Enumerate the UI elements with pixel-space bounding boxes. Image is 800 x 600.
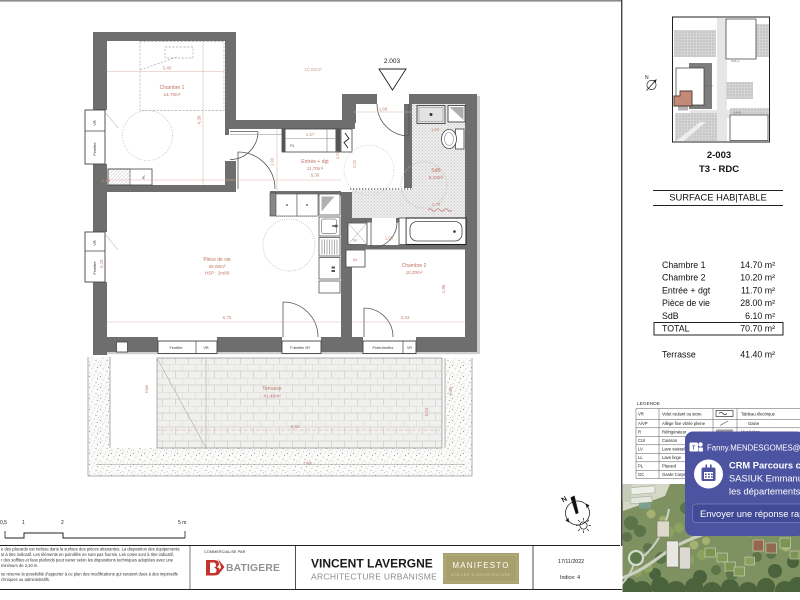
svg-text:28.00 m²: 28.00 m² xyxy=(740,298,775,308)
svg-text:Indice: 4: Indice: 4 xyxy=(560,575,580,581)
svg-text:SASIUK Emmanue: SASIUK Emmanue xyxy=(729,474,800,484)
svg-text:Fenêtre: Fenêtre xyxy=(169,346,182,350)
svg-text:41.40 m²: 41.40 m² xyxy=(740,350,775,360)
svg-text:COL.1: COL.1 xyxy=(731,59,740,63)
svg-text:st à titre indicatif. Les élém: st à titre indicatif. Les éléments en po… xyxy=(1,552,174,557)
svg-text:A/VP: A/VP xyxy=(638,421,648,426)
svg-text:r des soffites et faux plafond: r des soffites et faux plafonds peut var… xyxy=(1,558,174,563)
svg-text:Chambre 1: Chambre 1 xyxy=(662,260,706,270)
svg-text:14,70m²: 14,70m² xyxy=(164,92,181,97)
svg-text:Garde Corps: Garde Corps xyxy=(662,472,686,477)
svg-text:Haie: Haie xyxy=(448,386,453,395)
svg-text:11.70 m²: 11.70 m² xyxy=(741,285,775,295)
svg-text:60: 60 xyxy=(353,238,358,243)
svg-text:2: 2 xyxy=(61,520,64,526)
svg-text:Lave linge: Lave linge xyxy=(662,455,682,460)
svg-text:VR: VR xyxy=(92,240,97,246)
svg-text:17/11/2022: 17/11/2022 xyxy=(558,559,584,565)
svg-text:CRM Parcours co: CRM Parcours co xyxy=(729,461,800,471)
svg-text:Gaine: Gaine xyxy=(748,421,760,426)
svg-text:1,90: 1,90 xyxy=(270,157,275,166)
svg-text:70.70 m²: 70.70 m² xyxy=(740,324,775,334)
svg-text:6,10m²: 6,10m² xyxy=(429,175,444,180)
svg-text:e des placards est incluse dan: e des placards est incluse dans la surfa… xyxy=(1,547,180,552)
svg-text:3,40: 3,40 xyxy=(163,66,172,71)
svg-text:VR: VR xyxy=(92,120,97,126)
svg-text:2,02: 2,02 xyxy=(352,159,357,168)
svg-text:4,38: 4,38 xyxy=(197,115,202,124)
svg-text:TOTAL: TOTAL xyxy=(662,324,690,334)
svg-text:Porte-fenêtre: Porte-fenêtre xyxy=(373,346,394,350)
svg-text:1,22: 1,22 xyxy=(102,178,111,183)
svg-text:PL: PL xyxy=(142,175,146,179)
svg-text:R: R xyxy=(638,429,641,434)
svg-text:VR: VR xyxy=(407,346,412,350)
svg-text:PL: PL xyxy=(638,463,644,468)
svg-text:5,39: 5,39 xyxy=(311,173,320,178)
svg-text:Pièce de vie: Pièce de vie xyxy=(662,298,710,308)
svg-text:2.003: 2.003 xyxy=(384,58,401,65)
svg-text:Placard: Placard xyxy=(662,463,677,468)
svg-text:Chambre 2: Chambre 2 xyxy=(662,273,706,283)
svg-text:Terrasse: Terrasse xyxy=(262,386,281,392)
svg-text:se réserve la possibilité d'ap: se réserve la possibilité d'apporter à c… xyxy=(1,572,178,577)
svg-text:41,40m²: 41,40m² xyxy=(263,394,281,400)
svg-text:Réfrigérateur: Réfrigérateur xyxy=(662,429,687,434)
svg-text:10,20m²: 10,20m² xyxy=(406,270,423,275)
svg-text:LEGENDE: LEGENDE xyxy=(637,401,660,407)
svg-text:les départements: les départements xyxy=(729,487,800,497)
svg-text:Chambre 1: Chambre 1 xyxy=(160,85,185,91)
svg-text:chniques ou administratifs.: chniques ou administratifs. xyxy=(1,577,50,582)
svg-text:MANIFESTO: MANIFESTO xyxy=(452,561,509,570)
svg-text:1,56: 1,56 xyxy=(431,127,440,132)
svg-text:4,20: 4,20 xyxy=(99,259,104,268)
svg-text:ATELIER D'ARCHITECTURE: ATELIER D'ARCHITECTURE xyxy=(451,573,510,577)
svg-text:1,57: 1,57 xyxy=(306,132,315,137)
svg-text:Chambre 2: Chambre 2 xyxy=(402,263,427,269)
svg-text:1,68: 1,68 xyxy=(379,107,388,112)
svg-text:CUI: CUI xyxy=(638,438,645,443)
svg-text:Lave vaisselle: Lave vaisselle xyxy=(662,446,689,451)
svg-text:Allège fixe vitrée pleine: Allège fixe vitrée pleine xyxy=(662,421,706,426)
svg-text:VINCENT LAVERGNE: VINCENT LAVERGNE xyxy=(311,557,433,571)
svg-text:28,00m²: 28,00m² xyxy=(209,264,226,269)
svg-text:5 m: 5 m xyxy=(178,520,186,526)
svg-text:Pièce de vie: Pièce de vie xyxy=(203,257,230,263)
svg-text:Terrasse: Terrasse xyxy=(662,350,696,360)
svg-text:10,92m²: 10,92m² xyxy=(304,67,322,73)
svg-text:P-fenêtre VR: P-fenêtre VR xyxy=(290,346,310,350)
svg-text:PL: PL xyxy=(290,143,296,148)
svg-text:BATIGERE: BATIGERE xyxy=(226,563,280,574)
svg-text:VR: VR xyxy=(203,346,209,350)
svg-text:Haie: Haie xyxy=(144,384,149,393)
svg-text:Cuisson: Cuisson xyxy=(662,438,678,443)
svg-text:Tableau électrique: Tableau électrique xyxy=(741,412,776,417)
svg-text:6,75: 6,75 xyxy=(223,315,232,320)
svg-text:0,5: 0,5 xyxy=(0,520,7,526)
svg-text:LL: LL xyxy=(638,455,643,460)
svg-text:Fanny.MENDESGOMES@b: Fanny.MENDESGOMES@b xyxy=(707,444,800,453)
svg-text:14.70 m²: 14.70 m² xyxy=(740,260,775,270)
svg-text:minimum de 2,10 m.: minimum de 2,10 m. xyxy=(1,563,39,568)
svg-text:ARCHITECTURE URBANISME: ARCHITECTURE URBANISME xyxy=(311,572,437,582)
svg-text:GC: GC xyxy=(638,472,644,477)
svg-text:Volet roulant ou store: Volet roulant ou store xyxy=(662,412,702,417)
svg-text:N: N xyxy=(645,75,649,81)
svg-text:T3 - RDC: T3 - RDC xyxy=(699,164,739,175)
svg-text:VR: VR xyxy=(638,412,644,417)
svg-text:Entrée + dgt: Entrée + dgt xyxy=(301,159,329,165)
svg-text:COMMERCIALISE PAR: COMMERCIALISE PAR xyxy=(204,549,246,554)
svg-text:LV: LV xyxy=(638,446,643,451)
svg-text:10.20 m²: 10.20 m² xyxy=(740,273,775,283)
svg-text:5,53: 5,53 xyxy=(424,407,429,416)
svg-text:Envoyer une réponse rap: Envoyer une réponse rap xyxy=(700,509,800,519)
svg-text:2-003: 2-003 xyxy=(707,150,731,161)
svg-text:SURFACE HAB|TABLE: SURFACE HAB|TABLE xyxy=(669,192,767,203)
svg-text:1: 1 xyxy=(22,520,25,526)
svg-text:1,52: 1,52 xyxy=(335,150,340,159)
svg-text:HSP : 2m80: HSP : 2m80 xyxy=(205,271,230,276)
svg-text:Haie: Haie xyxy=(304,461,313,466)
svg-text:CAVE: CAVE xyxy=(733,111,741,115)
svg-text:9,82: 9,82 xyxy=(291,424,300,429)
svg-text:SdB: SdB xyxy=(662,311,679,321)
svg-text:2,86: 2,86 xyxy=(441,284,446,293)
svg-text:3,53: 3,53 xyxy=(401,315,410,320)
svg-text:11,70m²: 11,70m² xyxy=(307,166,324,171)
svg-text:Fenêtre: Fenêtre xyxy=(93,261,97,274)
svg-text:Fenêtre: Fenêtre xyxy=(93,142,97,155)
svg-text:1,06: 1,06 xyxy=(385,236,394,241)
svg-text:6.10 m²: 6.10 m² xyxy=(745,311,775,321)
svg-text:Entrée + dgt: Entrée + dgt xyxy=(662,285,711,295)
svg-text:1,70: 1,70 xyxy=(432,202,441,207)
svg-text:60: 60 xyxy=(353,257,358,262)
svg-text:COL.2: COL.2 xyxy=(704,84,713,88)
